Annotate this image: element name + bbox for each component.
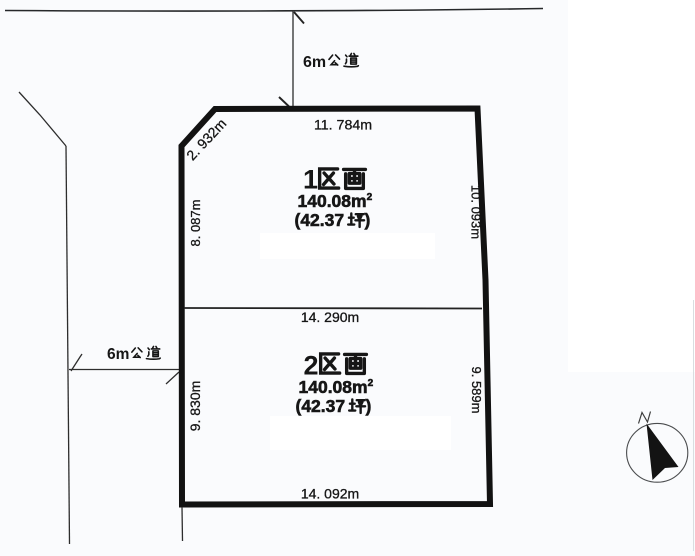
- svg-text:1: 1: [303, 164, 318, 194]
- svg-text:(42.37: (42.37: [296, 396, 346, 416]
- svg-text:10. 093m: 10. 093m: [469, 185, 484, 239]
- svg-text:9. 589m: 9. 589m: [469, 367, 484, 414]
- svg-text:2: 2: [304, 350, 319, 380]
- svg-text:9. 830m: 9. 830m: [187, 381, 203, 432]
- svg-text:14. 290m: 14. 290m: [301, 309, 359, 325]
- svg-text:14. 092m: 14. 092m: [301, 486, 359, 502]
- svg-text:6m: 6m: [303, 54, 326, 71]
- svg-text:11. 784m: 11. 784m: [314, 118, 372, 134]
- svg-text:6m: 6m: [107, 346, 129, 363]
- svg-text:140.08m2: 140.08m2: [299, 377, 374, 397]
- svg-text:): ): [365, 210, 371, 230]
- svg-text:): ): [366, 396, 372, 416]
- svg-text:140.08m2: 140.08m2: [298, 191, 373, 211]
- svg-text:(42.37: (42.37: [295, 210, 345, 230]
- svg-text:8. 087m: 8. 087m: [188, 200, 203, 247]
